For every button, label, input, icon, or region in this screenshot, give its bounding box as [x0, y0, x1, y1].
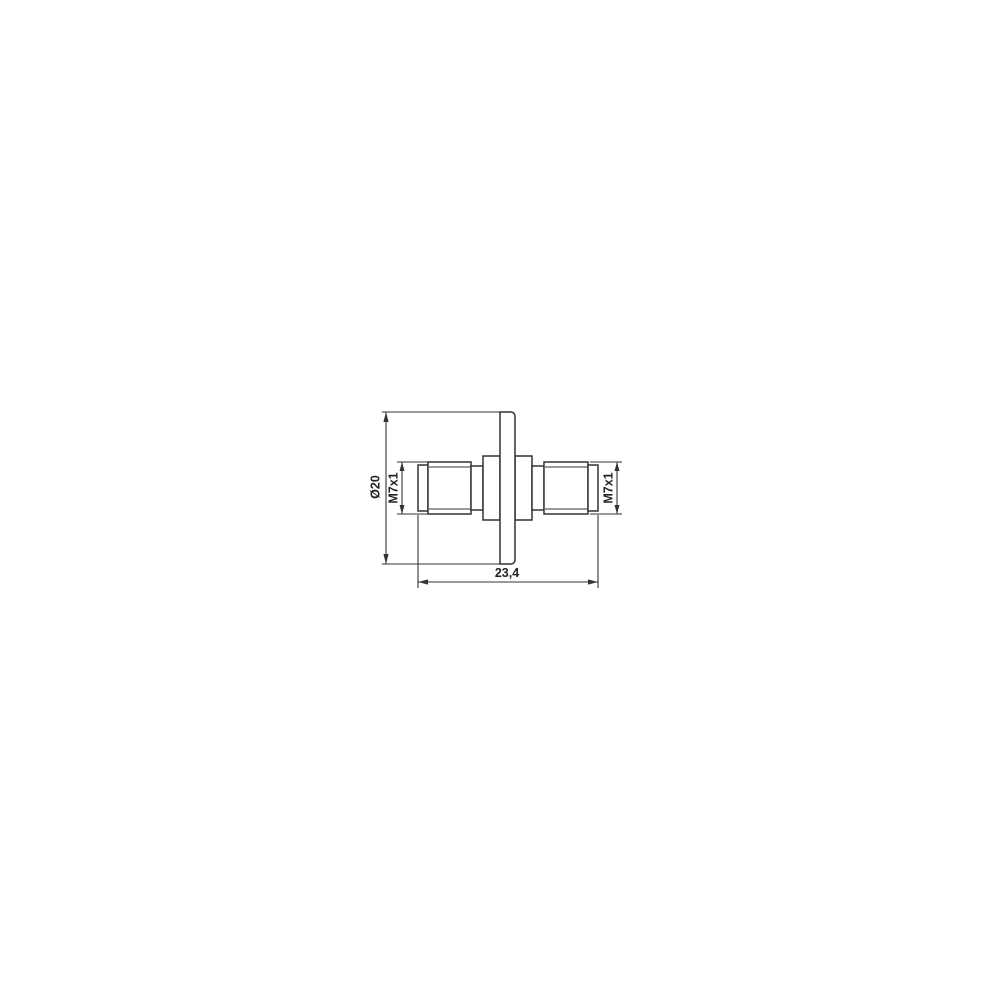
- technical-drawing-canvas: Ø20 M7x1 M7x1 23,4: [0, 0, 1000, 1000]
- left-neck: [471, 466, 483, 510]
- thread-left-arrow-top: [400, 462, 405, 471]
- diameter-label: Ø20: [368, 475, 382, 499]
- part-outline: [418, 412, 598, 564]
- left-thread-body: [428, 462, 471, 514]
- hex-body-left: [483, 456, 500, 520]
- length-arrow-right: [588, 579, 598, 584]
- thread-left-label: M7x1: [386, 472, 400, 503]
- adapter-drawing: Ø20 M7x1 M7x1 23,4: [0, 0, 1000, 1000]
- right-neck: [532, 466, 544, 510]
- right-thread-body: [544, 462, 588, 514]
- thread-left-arrow-bottom: [400, 505, 405, 514]
- diameter-arrow-bottom: [383, 554, 388, 564]
- length-label: 23,4: [495, 566, 519, 580]
- diameter-arrow-top: [383, 412, 388, 422]
- right-thread-end-chamfer: [588, 465, 598, 511]
- left-thread-end-chamfer: [418, 465, 428, 511]
- thread-right-label: M7x1: [601, 472, 615, 503]
- thread-right-arrow-bottom: [615, 505, 620, 514]
- flange-plate: [500, 412, 515, 564]
- hex-body-right: [515, 456, 532, 520]
- thread-right-arrow-top: [615, 462, 620, 471]
- length-arrow-left: [418, 579, 428, 584]
